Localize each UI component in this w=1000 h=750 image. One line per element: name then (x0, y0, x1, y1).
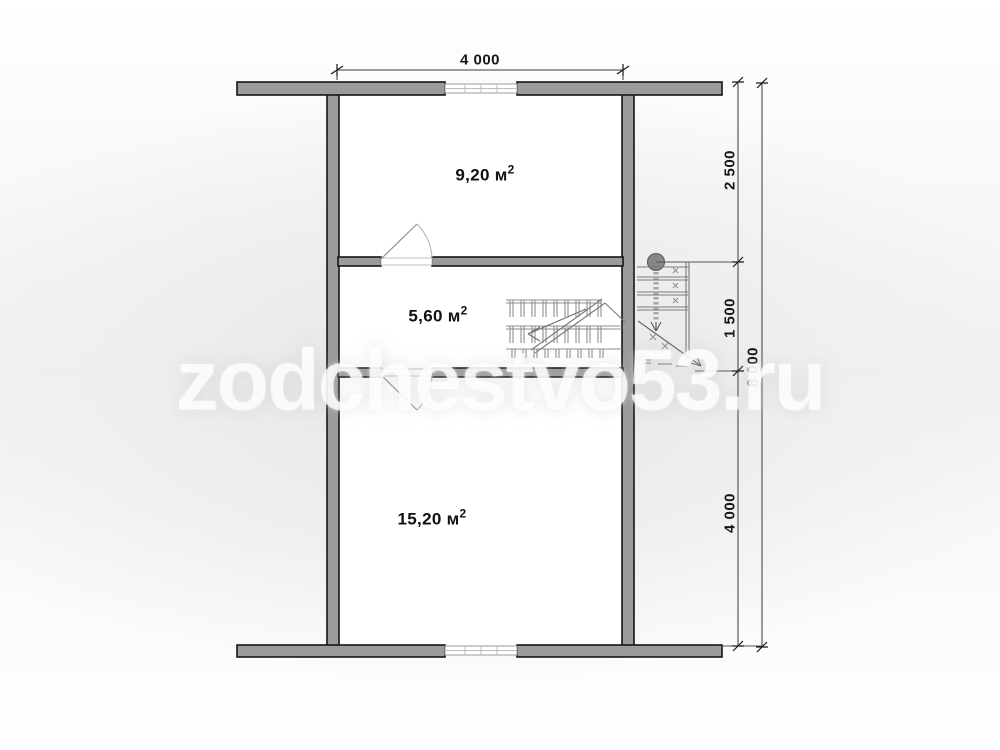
landing-bottom-dashes (638, 360, 688, 366)
wall-bottom-left-segment (237, 645, 445, 657)
floor-plan-drawing (0, 0, 1000, 750)
room-area-sup: 2 (459, 507, 466, 521)
landing-break-arrow (638, 321, 701, 366)
wall-top-right-segment (517, 82, 722, 95)
wall-partition2-main (432, 368, 623, 377)
wall-partition2-stub (338, 368, 381, 377)
room-area-label-middle: 5,60 м2 (408, 304, 467, 327)
dim-label-8000-total: 8 000 (745, 347, 762, 387)
dim-label-2500: 2 500 (722, 150, 739, 190)
room-area-value: 9,20 м (455, 165, 507, 184)
landing-treads (637, 267, 689, 310)
room-area-label-bottom: 15,20 м2 (398, 507, 467, 530)
room-area-label-top: 9,20 м2 (455, 163, 514, 186)
wall-bottom-right-segment (517, 645, 722, 657)
door-bottom-threshold (381, 369, 432, 376)
floor-plan-canvas: 9,20 м2 5,60 м2 15,20 м2 4 000 2 500 1 5… (0, 0, 1000, 750)
room-area-sup: 2 (508, 163, 515, 177)
tread-x-marks (673, 268, 678, 303)
dim-line-top (337, 70, 623, 80)
wall-partition1-stub (338, 257, 381, 266)
room-area-sup: 2 (461, 304, 468, 318)
dim-label-1500: 1 500 (722, 298, 739, 338)
room-area-value: 5,60 м (408, 306, 460, 325)
wall-top-left-segment (237, 82, 445, 95)
wall-partition1-main (432, 257, 623, 266)
walkline-arrow (651, 322, 661, 331)
dim-label-4000-right: 4 000 (722, 493, 739, 533)
door-top-threshold (381, 258, 432, 265)
room-area-value: 15,20 м (398, 509, 460, 528)
dim-label-top-width: 4 000 (460, 52, 500, 69)
